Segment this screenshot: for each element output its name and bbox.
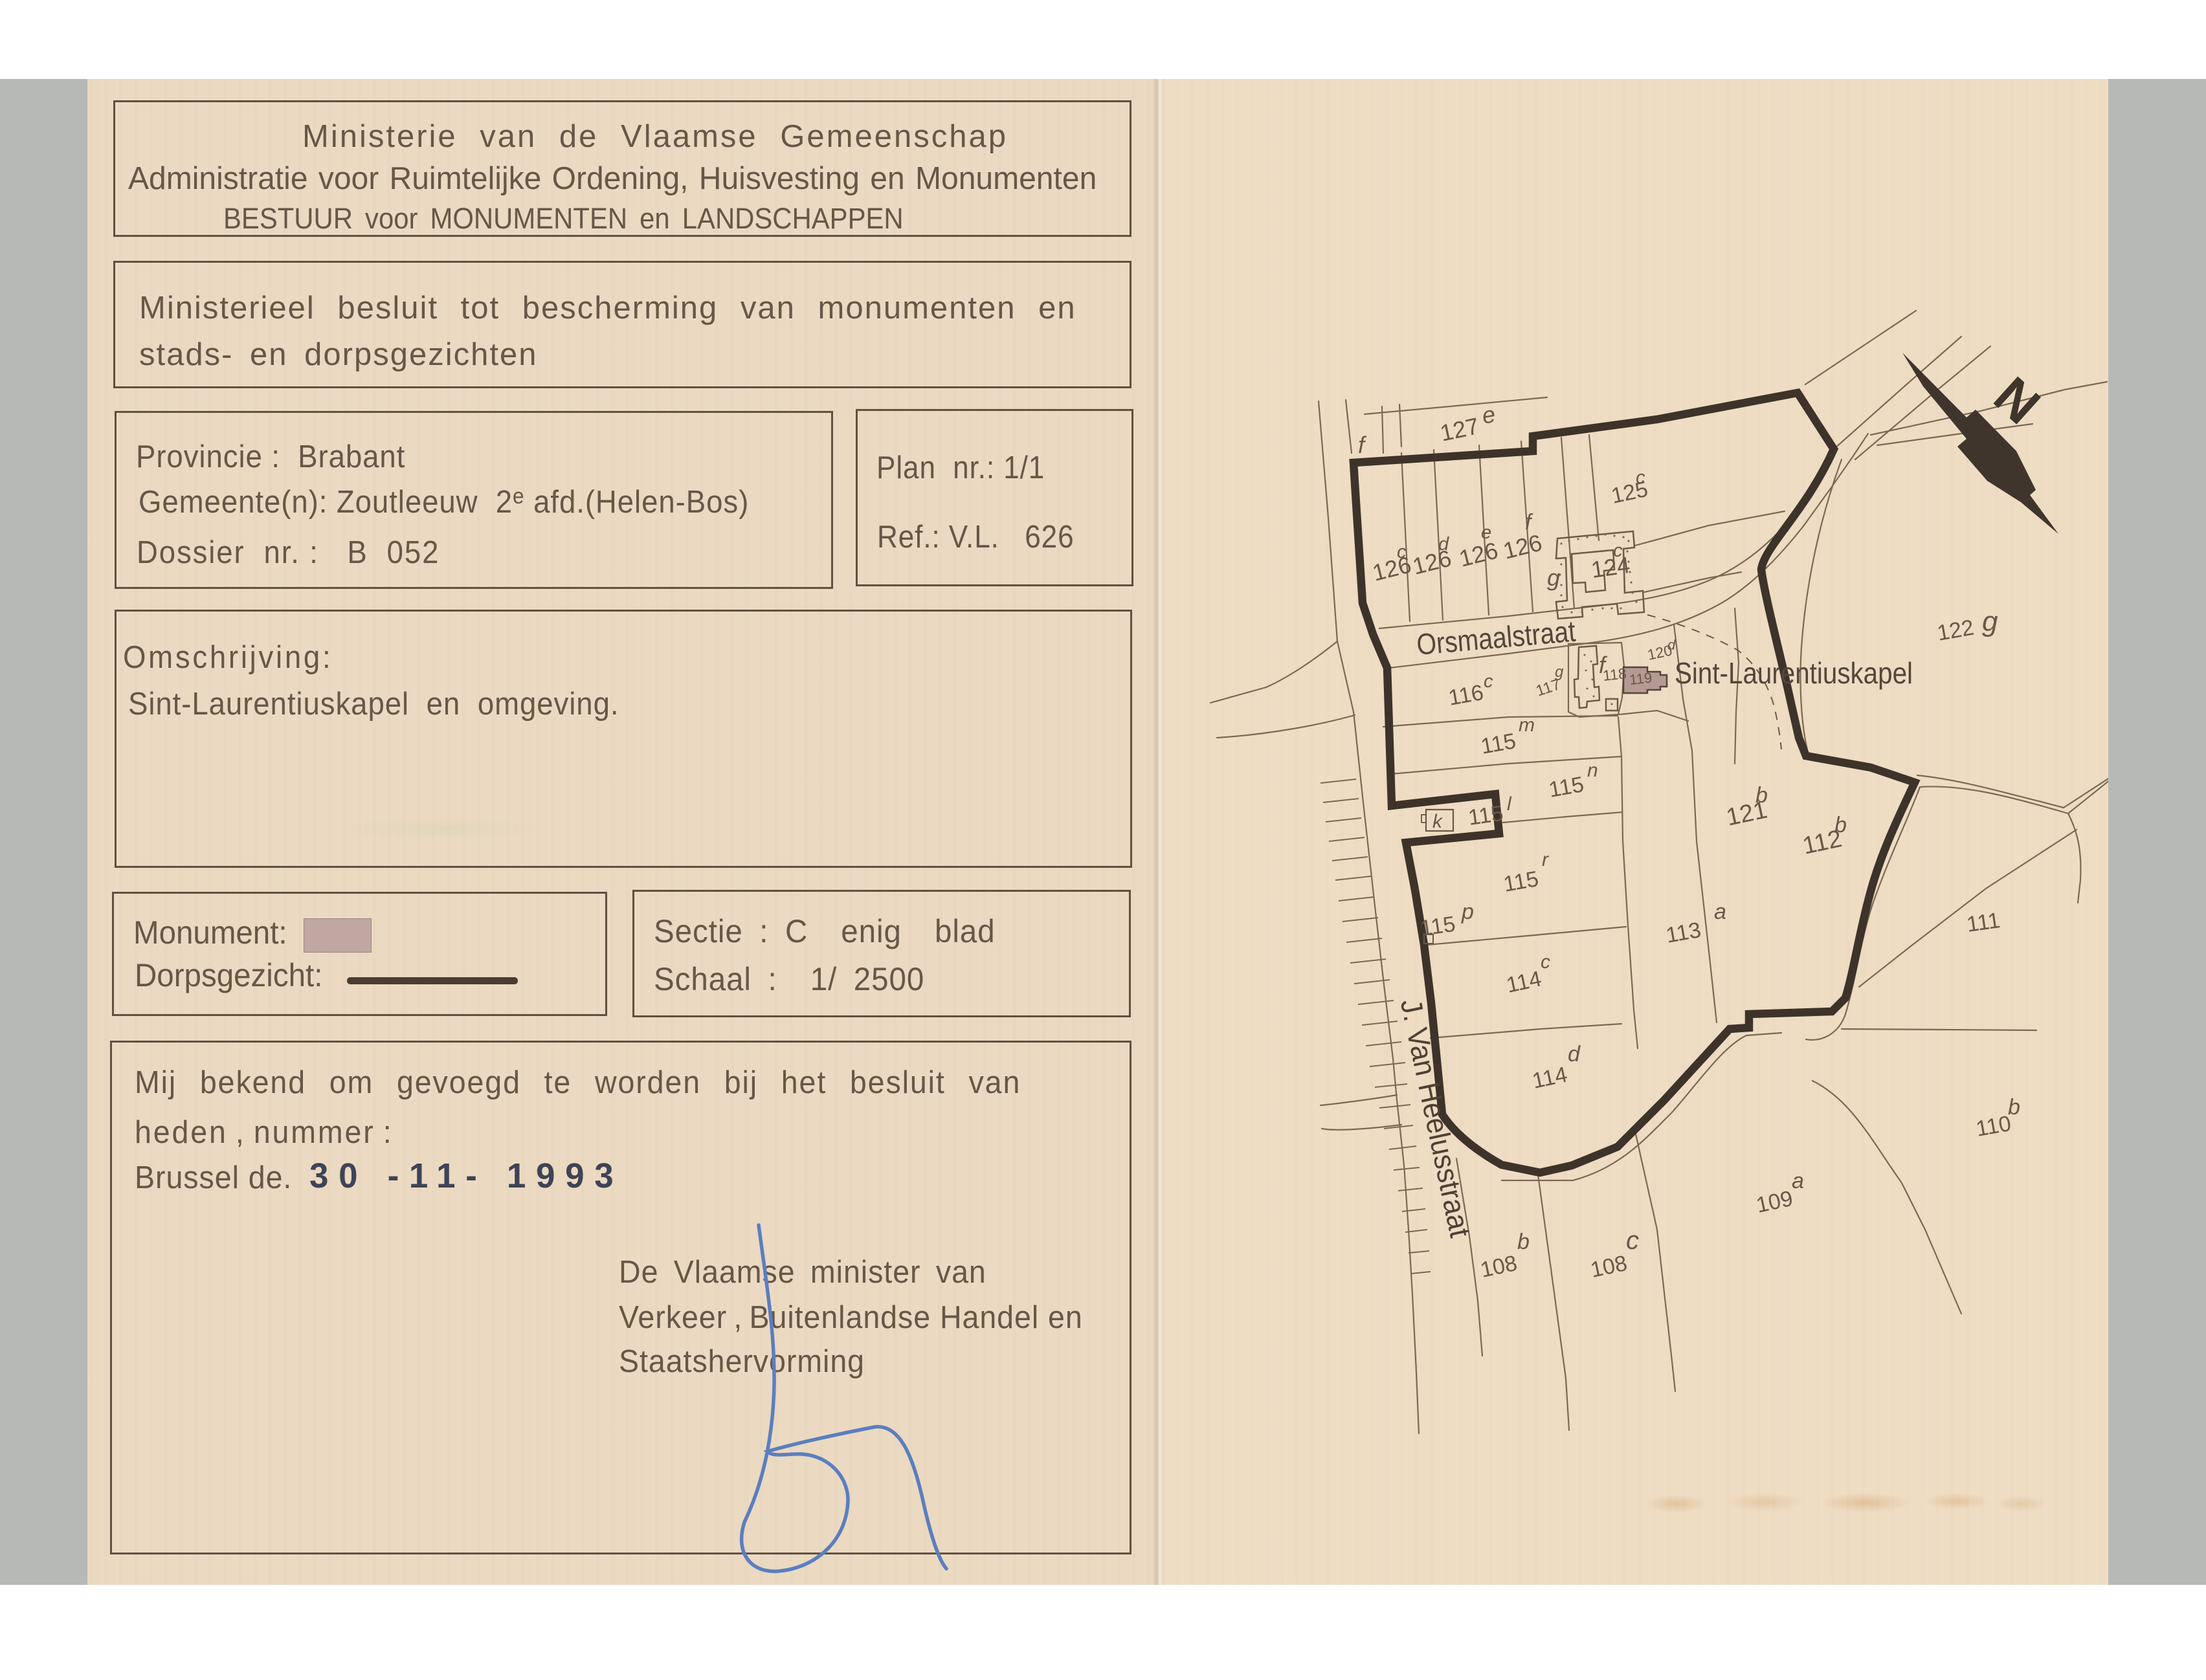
svg-text:119: 119 bbox=[1629, 669, 1653, 688]
svg-text:r: r bbox=[1542, 849, 1549, 870]
svg-text:b: b bbox=[1517, 1230, 1530, 1254]
svg-text:b: b bbox=[1834, 813, 1847, 837]
svg-text:115: 115 bbox=[1502, 867, 1541, 897]
svg-text:111: 111 bbox=[1965, 908, 2001, 937]
svg-text:109: 109 bbox=[1754, 1186, 1795, 1218]
svg-text:b: b bbox=[1755, 783, 1768, 808]
svg-text:110: 110 bbox=[1974, 1111, 2013, 1142]
svg-text:d: d bbox=[1667, 637, 1676, 653]
svg-text:e: e bbox=[1480, 401, 1497, 429]
svg-text:116: 116 bbox=[1447, 680, 1486, 711]
svg-text:p: p bbox=[1461, 900, 1474, 924]
svg-text:l: l bbox=[1507, 793, 1512, 815]
svg-text:e: e bbox=[1481, 522, 1491, 543]
svg-text:f: f bbox=[1358, 432, 1367, 458]
svg-text:g: g bbox=[1547, 564, 1560, 591]
svg-text:108: 108 bbox=[1588, 1251, 1629, 1283]
svg-text:g: g bbox=[1982, 606, 1998, 637]
svg-text:Orsmaalstraat: Orsmaalstraat bbox=[1415, 614, 1577, 661]
svg-text:124: 124 bbox=[1589, 551, 1631, 583]
svg-text:k: k bbox=[1432, 811, 1443, 832]
svg-text:Sint-Laurentiuskapel: Sint-Laurentiuskapel bbox=[1675, 656, 1913, 690]
svg-text:c: c bbox=[1541, 951, 1550, 973]
svg-text:108: 108 bbox=[1478, 1251, 1519, 1283]
svg-text:114: 114 bbox=[1530, 1062, 1570, 1093]
svg-text:118: 118 bbox=[1602, 665, 1627, 684]
svg-text:c: c bbox=[1626, 1226, 1639, 1255]
svg-text:115: 115 bbox=[1479, 729, 1518, 759]
svg-text:d: d bbox=[1438, 534, 1449, 555]
svg-text:n: n bbox=[1587, 760, 1598, 781]
svg-text:115: 115 bbox=[1467, 801, 1505, 830]
svg-text:m: m bbox=[1519, 714, 1535, 736]
svg-text:c: c bbox=[1613, 540, 1623, 561]
svg-text:c: c bbox=[1636, 467, 1645, 488]
svg-text:c: c bbox=[1484, 671, 1493, 692]
svg-text:g: g bbox=[1555, 663, 1564, 681]
svg-text:b: b bbox=[2008, 1095, 2020, 1120]
svg-text:c: c bbox=[1397, 542, 1407, 562]
svg-text:a: a bbox=[1714, 900, 1726, 924]
svg-text:d: d bbox=[1568, 1042, 1581, 1067]
svg-text:126: 126 bbox=[1456, 536, 1500, 571]
svg-text:N: N bbox=[1983, 366, 2051, 436]
svg-text:115: 115 bbox=[1547, 772, 1586, 802]
svg-text:126: 126 bbox=[1500, 529, 1544, 564]
svg-text:113: 113 bbox=[1664, 918, 1703, 948]
svg-text:127: 127 bbox=[1438, 412, 1481, 447]
svg-text:114: 114 bbox=[1504, 966, 1544, 997]
svg-text:a: a bbox=[1792, 1169, 1804, 1193]
svg-text:122: 122 bbox=[1935, 615, 1976, 646]
